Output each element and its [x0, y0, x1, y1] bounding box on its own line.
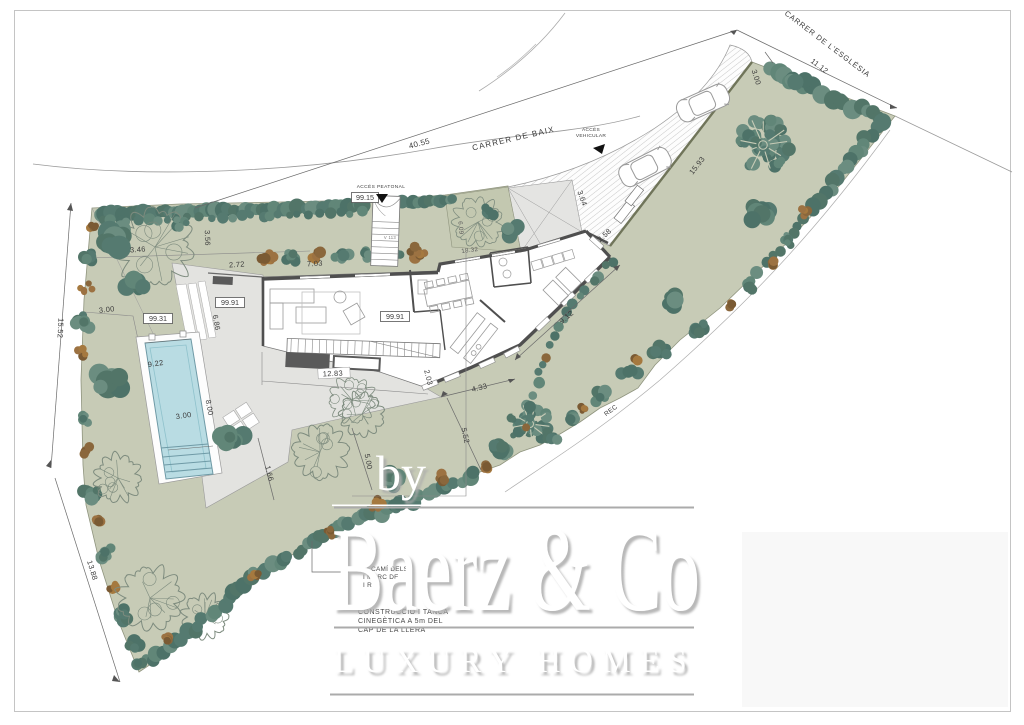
svg-text:by: by: [376, 445, 426, 501]
svg-text:99.15: 99.15: [356, 193, 374, 202]
svg-text:99.91: 99.91: [221, 298, 239, 307]
svg-text:ACCÉS: ACCÉS: [582, 126, 600, 133]
svg-text:13.88: 13.88: [85, 559, 100, 581]
svg-text:3.00: 3.00: [98, 304, 115, 315]
svg-text:6.09: 6.09: [456, 221, 464, 235]
svg-text:V 113: V 113: [384, 235, 397, 240]
svg-text:15.52: 15.52: [55, 318, 65, 339]
svg-text:99.91: 99.91: [386, 312, 404, 321]
svg-text:40.55: 40.55: [408, 136, 431, 150]
svg-text:12.83: 12.83: [323, 368, 344, 378]
svg-text:CARRER DE BAIX: CARRER DE BAIX: [471, 125, 555, 153]
svg-text:Baerz & Co: Baerz & Co: [332, 503, 700, 636]
svg-text:3.46: 3.46: [130, 244, 146, 254]
svg-text:99.31: 99.31: [149, 314, 167, 323]
svg-text:VEHICULAR: VEHICULAR: [576, 133, 606, 139]
svg-text:11.12: 11.12: [809, 56, 830, 75]
svg-text:2.72: 2.72: [229, 259, 245, 269]
svg-text:3.56: 3.56: [203, 230, 213, 246]
svg-text:7.03: 7.03: [307, 258, 323, 268]
svg-text:LUXURY HOMES: LUXURY HOMES: [334, 643, 696, 680]
svg-text:REC: REC: [603, 404, 619, 418]
svg-text:ACCÉS PEATONAL: ACCÉS PEATONAL: [357, 183, 406, 190]
